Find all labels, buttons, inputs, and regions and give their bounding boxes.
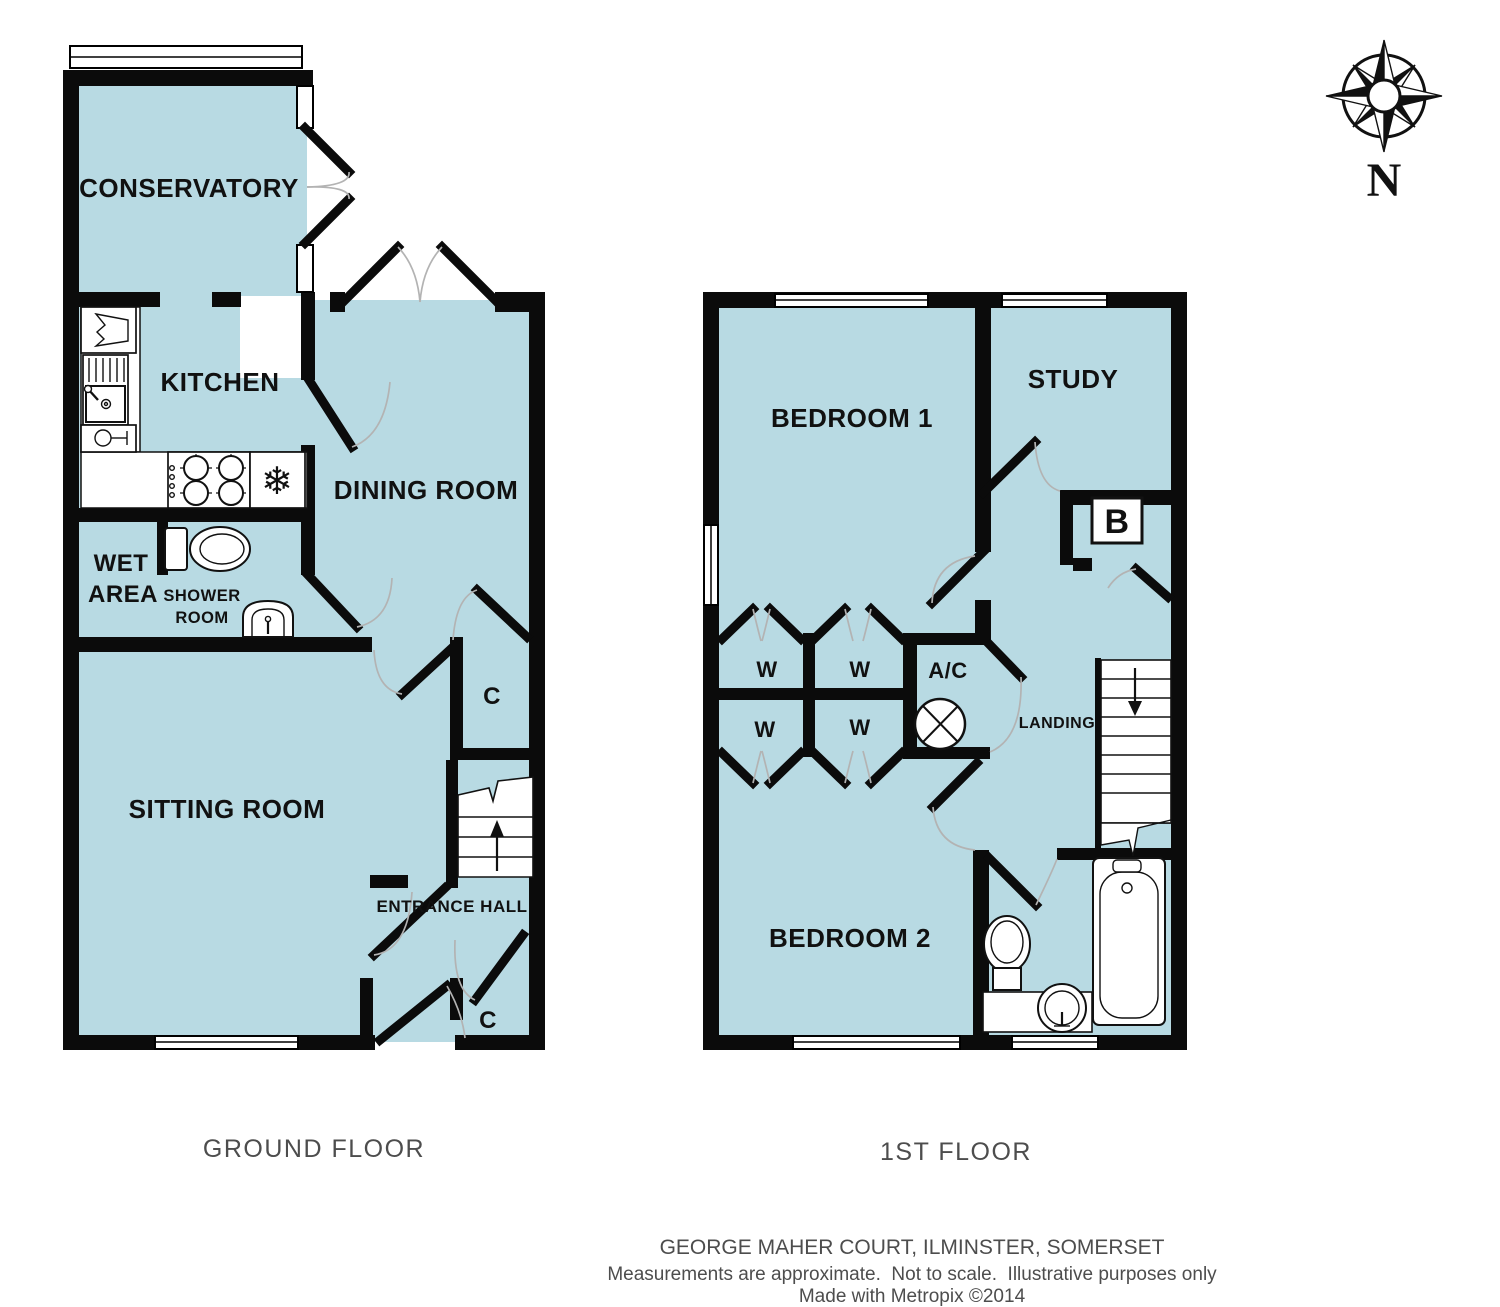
room-label-dining-room: DINING ROOM: [334, 475, 519, 505]
boiler-box: B: [1092, 498, 1142, 543]
floorplan-drawing: ❄ CONS: [0, 0, 1500, 1307]
room-label-wet-area-1: WET: [94, 550, 149, 577]
room-label-wardrobe-2: W: [849, 657, 870, 682]
sink-icon: [243, 601, 293, 637]
bath-icon: [1093, 858, 1165, 1025]
ac-fan-icon: [915, 699, 965, 749]
room-label-wardrobe-3: W: [754, 717, 775, 742]
room-label-bedroom2: BEDROOM 2: [769, 923, 931, 953]
bedroom1-window: [775, 294, 928, 307]
footer-credit: Made with Metropix ©2014: [799, 1286, 1026, 1307]
sitting-room-window: [155, 1036, 298, 1049]
room-label-kitchen: KITCHEN: [160, 367, 279, 397]
room-label-cupboard-1: C: [483, 683, 501, 710]
footer: GEORGE MAHER COURT, ILMINSTER, SOMERSET …: [607, 1236, 1217, 1307]
staircase-up: [458, 777, 533, 877]
compass-north-label: N: [1367, 154, 1402, 207]
room-label-wardrobe-4: W: [849, 715, 870, 740]
glass-icon: [81, 425, 136, 452]
freezer-icon: ❄: [250, 452, 305, 508]
footer-address: GEORGE MAHER COURT, ILMINSTER, SOMERSET: [660, 1236, 1165, 1259]
first-floor-plan: B: [703, 292, 1187, 1050]
conservatory-door-leaf: [305, 128, 349, 172]
conservatory-side-window: [297, 245, 313, 292]
room-label-ac: A/C: [928, 658, 967, 683]
kitchen-sink-icon: [83, 355, 128, 425]
room-label-shower-room-1: SHOWER: [163, 587, 240, 605]
hob-icon: [168, 452, 250, 508]
study-window: [1002, 294, 1107, 307]
appliance-icon: [81, 307, 136, 353]
dining-french-door-leaf: [345, 247, 398, 300]
room-label-sitting-room: SITTING ROOM: [129, 794, 326, 824]
room-label-cupboard-2: C: [479, 1007, 497, 1034]
conservatory-door-leaf: [305, 199, 349, 243]
dining-french-door-leaf: [442, 247, 495, 300]
room-label-landing: LANDING: [1019, 715, 1095, 732]
svg-text:❄: ❄: [261, 461, 293, 503]
floorplan-page: ❄ CONS: [0, 0, 1500, 1307]
ground-floor-plan: ❄ CONS: [63, 46, 545, 1050]
sink-icon: [983, 984, 1092, 1032]
kitchen-recess: [240, 296, 302, 378]
room-label-wardrobe-1: W: [756, 657, 777, 682]
room-label-entrance-hall: ENTRANCE HALL: [377, 897, 528, 916]
room-label-study: STUDY: [1028, 364, 1119, 394]
bedroom2-window: [793, 1036, 960, 1049]
room-label-boiler: B: [1104, 503, 1129, 541]
room-label-bedroom1: BEDROOM 1: [771, 403, 933, 433]
conservatory-window: [70, 46, 302, 68]
bathroom-window: [1012, 1036, 1098, 1049]
toilet-icon: [165, 527, 250, 571]
bedroom1-side-window: [704, 525, 718, 605]
room-label-shower-room-2: ROOM: [175, 609, 228, 627]
footer-disclaimer: Measurements are approximate. Not to sca…: [607, 1264, 1217, 1285]
first-floor-title: 1ST FLOOR: [880, 1138, 1032, 1166]
room-label-wet-area-2: AREA: [88, 581, 158, 608]
ground-floor-title: GROUND FLOOR: [203, 1135, 425, 1163]
compass-rose-icon: N: [1326, 40, 1442, 207]
room-label-conservatory: CONSERVATORY: [79, 173, 299, 203]
